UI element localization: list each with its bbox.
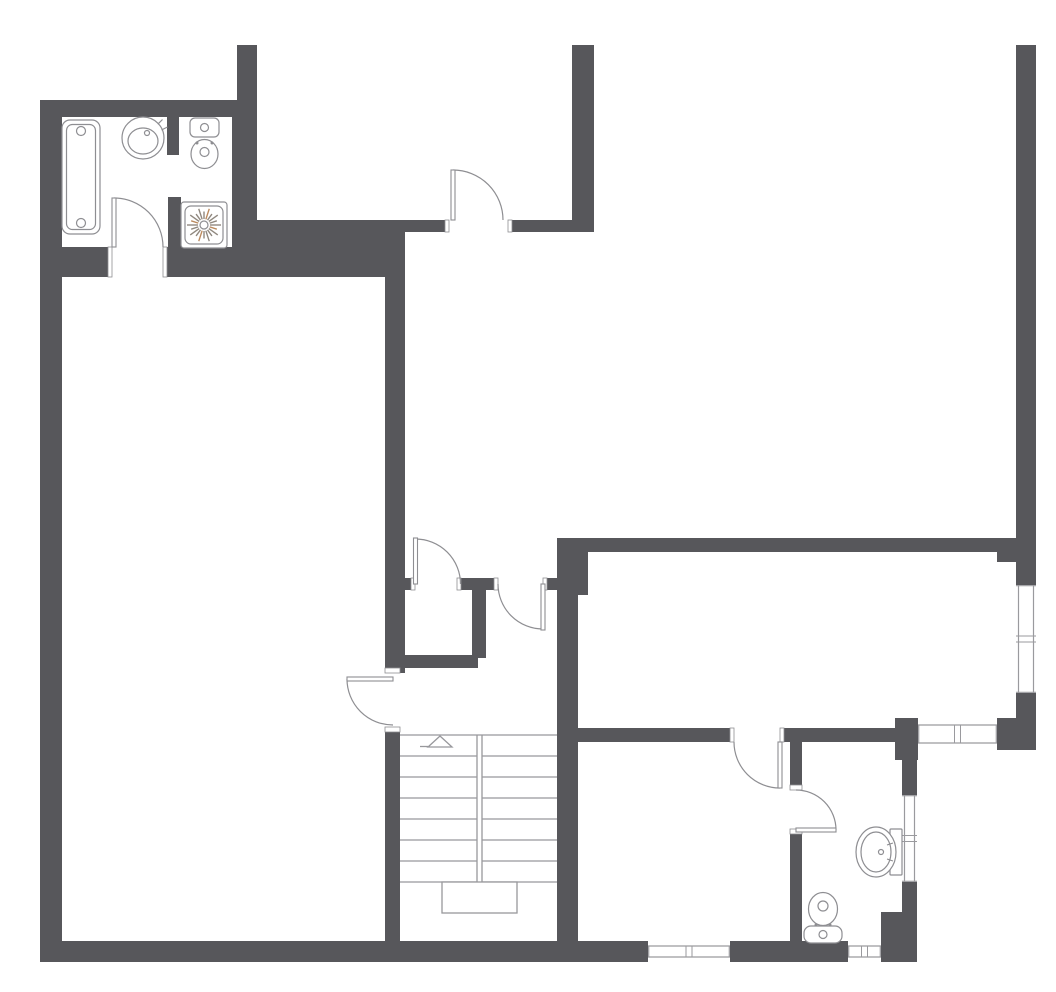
door-leaf bbox=[796, 828, 836, 832]
door-jamb bbox=[445, 220, 449, 232]
door-jamb bbox=[385, 727, 400, 732]
toilet-bolt bbox=[829, 924, 832, 927]
door-leaf bbox=[451, 170, 455, 220]
staircase bbox=[400, 735, 557, 913]
door-bathroom-bottom bbox=[790, 785, 836, 834]
floor-plan-svg bbox=[0, 0, 1056, 992]
wall-segment bbox=[257, 220, 405, 277]
door-swing-arc bbox=[347, 679, 393, 725]
window-right-wall bbox=[1016, 585, 1036, 693]
walls-layer bbox=[40, 45, 1036, 962]
wall-segment bbox=[167, 117, 179, 155]
door-top-middle-room bbox=[445, 170, 512, 232]
wall-segment bbox=[40, 247, 112, 277]
door-swing-arc bbox=[796, 790, 836, 830]
wall-segment bbox=[472, 590, 486, 658]
sink-basin bbox=[861, 832, 891, 872]
toilet-top-left bbox=[190, 118, 219, 169]
wall-segment bbox=[40, 941, 648, 962]
windows-layer bbox=[648, 585, 1036, 960]
toilet-drain bbox=[200, 148, 209, 157]
wall-segment bbox=[461, 578, 498, 590]
door-swing-arc bbox=[114, 198, 163, 247]
window-bathroom-right bbox=[902, 795, 917, 882]
door-swing-arc bbox=[453, 170, 503, 220]
door-leaf bbox=[778, 742, 782, 788]
door-jamb bbox=[108, 247, 112, 277]
shower-tray bbox=[181, 202, 227, 248]
window-right-room-bottom bbox=[918, 722, 997, 746]
door-swing-arc bbox=[734, 742, 780, 788]
wall-segment bbox=[237, 45, 257, 117]
toilet-bolt bbox=[815, 924, 818, 927]
wall-segment bbox=[163, 247, 232, 277]
door-leaf bbox=[112, 198, 116, 247]
toilet-bolt bbox=[211, 142, 214, 145]
bathtub-drain bbox=[77, 127, 86, 136]
wall-segment bbox=[40, 100, 62, 958]
wall-segment bbox=[385, 732, 400, 941]
sink-tap bbox=[158, 120, 163, 125]
wall-segment bbox=[508, 220, 572, 232]
wall-segment bbox=[385, 220, 405, 673]
wall-segment bbox=[730, 941, 848, 962]
door-swing-arc bbox=[498, 584, 543, 629]
toilet-drain bbox=[818, 901, 828, 911]
wall-segment bbox=[790, 742, 802, 790]
door-bedroom bbox=[730, 728, 784, 788]
door-jamb bbox=[790, 785, 802, 790]
stair-direction-arrow bbox=[428, 736, 452, 747]
window-bathroom-bottom bbox=[848, 943, 881, 960]
stair-landing bbox=[442, 882, 517, 913]
door-jamb bbox=[385, 668, 400, 673]
door-stair-passage bbox=[494, 578, 547, 630]
wall-segment bbox=[40, 100, 257, 117]
wall-segment bbox=[997, 718, 1036, 750]
door-jamb bbox=[163, 247, 167, 277]
door-leaf bbox=[347, 677, 393, 681]
wall-segment bbox=[895, 718, 918, 760]
wall-segment bbox=[563, 538, 1016, 552]
wall-segment bbox=[557, 728, 734, 742]
toilet-bolt bbox=[196, 142, 199, 145]
bathtub-drain bbox=[77, 219, 86, 228]
wall-segment bbox=[578, 552, 588, 595]
shower-drain bbox=[200, 221, 208, 229]
sink-oval-bottom-right bbox=[856, 827, 902, 877]
wall-segment bbox=[398, 655, 478, 668]
door-bathroom-top-left bbox=[108, 198, 167, 277]
wall-segment bbox=[902, 760, 917, 795]
bathtub bbox=[62, 120, 100, 234]
wall-segment bbox=[997, 548, 1016, 562]
door-closet bbox=[411, 538, 461, 590]
toilet-tank-button bbox=[201, 124, 209, 132]
wall-segment bbox=[1016, 45, 1036, 585]
door-stairs-room bbox=[347, 668, 400, 732]
wall-segment bbox=[902, 882, 917, 912]
sink-round-top-left bbox=[122, 117, 168, 159]
door-leaf bbox=[414, 538, 418, 584]
window-bedroom-bottom bbox=[648, 943, 730, 960]
wall-segment bbox=[780, 728, 895, 742]
sink-basin bbox=[128, 128, 158, 154]
sink-tap bbox=[879, 850, 884, 855]
sink-tap bbox=[162, 127, 168, 130]
door-jamb bbox=[780, 728, 784, 742]
wall-segment bbox=[572, 45, 594, 232]
toilet-bottom-right bbox=[804, 893, 842, 944]
toilet-tank-button bbox=[819, 931, 827, 939]
bathtub-inner bbox=[67, 125, 96, 230]
wall-segment bbox=[790, 829, 802, 941]
sink-drain bbox=[145, 131, 150, 136]
wall-segment bbox=[168, 197, 181, 250]
wall-segment bbox=[881, 912, 917, 962]
door-jamb bbox=[730, 728, 734, 742]
wall-segment bbox=[232, 117, 257, 277]
door-swing-arc bbox=[416, 539, 461, 584]
wall-segment bbox=[1016, 693, 1036, 718]
door-jamb bbox=[508, 220, 512, 232]
floor-plan-canvas bbox=[0, 0, 1056, 992]
door-leaf bbox=[541, 584, 545, 630]
wall-segment bbox=[405, 220, 449, 232]
